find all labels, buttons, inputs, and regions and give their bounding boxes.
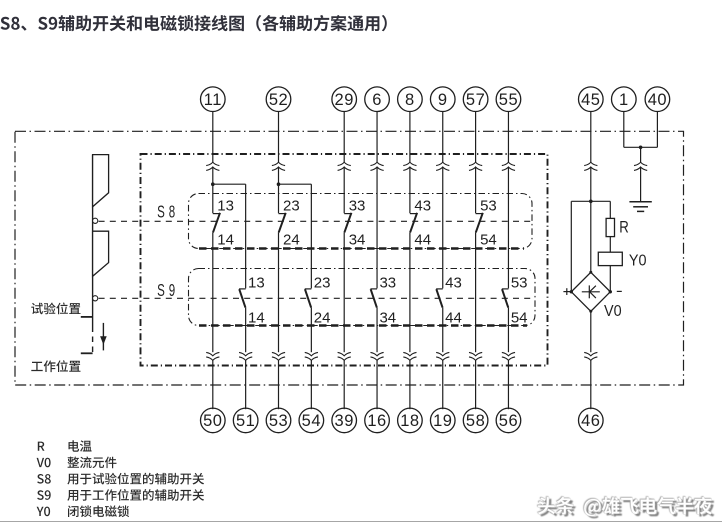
svg-text:14: 14 <box>217 232 234 249</box>
svg-text:52: 52 <box>269 91 288 109</box>
svg-text:43: 43 <box>445 275 462 292</box>
svg-text:44: 44 <box>414 232 431 249</box>
svg-text:46: 46 <box>581 412 600 430</box>
svg-text:50: 50 <box>203 412 222 430</box>
svg-text:11: 11 <box>204 91 222 109</box>
svg-text:R: R <box>619 219 629 237</box>
svg-text:S9: S9 <box>157 282 179 301</box>
svg-text:51: 51 <box>236 412 255 430</box>
svg-text:58: 58 <box>466 412 485 430</box>
svg-text:6: 6 <box>372 91 382 109</box>
svg-text:34: 34 <box>349 232 366 249</box>
svg-text:23: 23 <box>314 275 331 292</box>
svg-text:54: 54 <box>480 232 497 249</box>
svg-text:34: 34 <box>379 309 396 326</box>
svg-text:16: 16 <box>367 412 386 430</box>
svg-text:57: 57 <box>466 91 485 109</box>
svg-text:13: 13 <box>248 275 265 292</box>
svg-text:8: 8 <box>405 91 415 109</box>
svg-text:54: 54 <box>302 412 321 430</box>
svg-text:29: 29 <box>335 91 354 109</box>
svg-text:24: 24 <box>283 232 300 249</box>
svg-text:40: 40 <box>648 91 667 109</box>
svg-text:V0: V0 <box>604 302 622 320</box>
svg-text:13: 13 <box>217 197 234 214</box>
svg-text:43: 43 <box>414 197 431 214</box>
svg-text:Y0: Y0 <box>629 252 647 270</box>
svg-text:45: 45 <box>581 91 600 109</box>
svg-text:23: 23 <box>283 197 300 214</box>
svg-text:33: 33 <box>349 197 366 214</box>
svg-text:53: 53 <box>480 197 497 214</box>
svg-text:14: 14 <box>248 309 265 326</box>
svg-text:55: 55 <box>499 91 518 109</box>
svg-text:S8: S8 <box>157 203 179 222</box>
svg-text:24: 24 <box>314 309 331 326</box>
svg-text:18: 18 <box>400 412 419 430</box>
svg-text:53: 53 <box>269 412 288 430</box>
svg-text:19: 19 <box>433 412 452 430</box>
svg-text:9: 9 <box>438 91 448 109</box>
svg-text:1: 1 <box>619 91 629 109</box>
svg-text:39: 39 <box>335 412 354 430</box>
svg-text:56: 56 <box>499 412 518 430</box>
svg-text:44: 44 <box>445 309 462 326</box>
svg-text:53: 53 <box>511 275 528 292</box>
svg-text:33: 33 <box>379 275 396 292</box>
svg-text:54: 54 <box>511 309 528 326</box>
